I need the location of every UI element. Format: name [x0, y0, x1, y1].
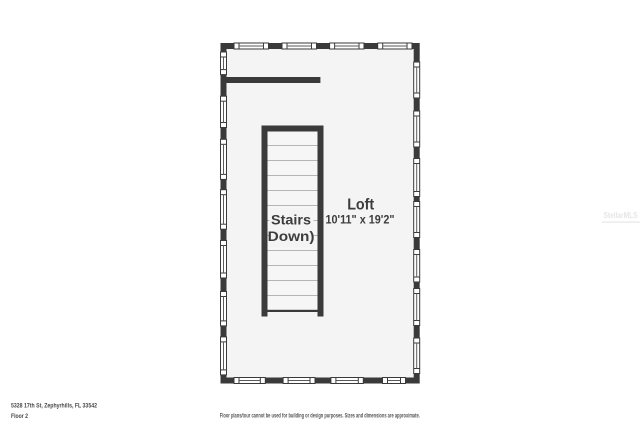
svg-text:Loft: Loft	[347, 197, 374, 214]
svg-text:5328 17th St, Zephyrhills, FL: 5328 17th St, Zephyrhills, FL 33542	[11, 403, 97, 410]
svg-text:10'11" x 19'2": 10'11" x 19'2"	[326, 213, 395, 227]
svg-text:Floor plans/tour cannot be use: Floor plans/tour cannot be used for buil…	[220, 414, 420, 420]
svg-text:(Down): (Down)	[263, 228, 315, 244]
svg-text:Floor 2: Floor 2	[11, 413, 28, 420]
svg-text:StellarMLS: StellarMLS	[604, 211, 639, 220]
svg-text:Stairs: Stairs	[271, 212, 311, 228]
